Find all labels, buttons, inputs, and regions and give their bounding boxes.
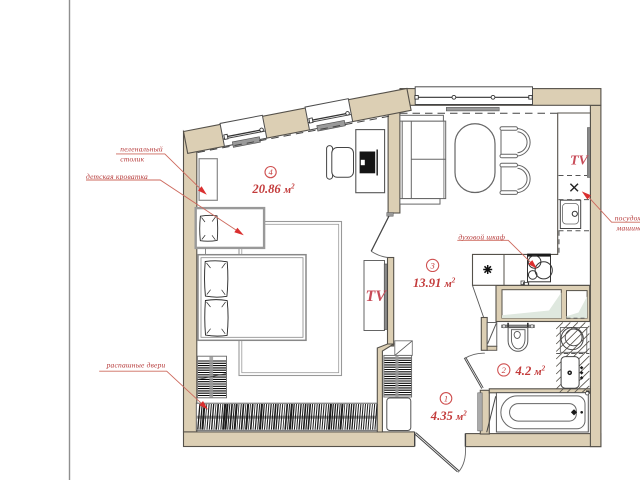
svg-text:детская кроватка: детская кроватка <box>86 172 148 181</box>
svg-text:TV: TV <box>570 153 590 168</box>
svg-text:13.91 м2: 13.91 м2 <box>413 276 456 290</box>
svg-text:столик: столик <box>120 155 144 164</box>
svg-text:TV: TV <box>366 288 388 305</box>
svg-text:3: 3 <box>429 260 434 270</box>
svg-text:посудомоечная: посудомоечная <box>615 213 640 222</box>
svg-text:4.2 м2: 4.2 м2 <box>515 364 546 378</box>
svg-text:4: 4 <box>268 167 273 177</box>
svg-text:2: 2 <box>502 365 507 375</box>
svg-text:машина: машина <box>616 223 640 232</box>
svg-text:распашные двери: распашные двери <box>106 361 166 370</box>
svg-text:4.35 м2: 4.35 м2 <box>430 409 467 423</box>
svg-text:1: 1 <box>444 393 448 403</box>
svg-text:пеленальный: пеленальный <box>120 145 163 154</box>
svg-text:20.86 м2: 20.86 м2 <box>251 182 295 196</box>
